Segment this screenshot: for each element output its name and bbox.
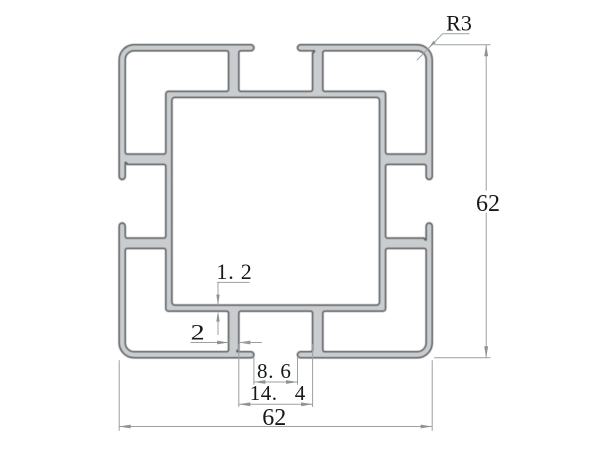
svg-text:62: 62 (476, 191, 500, 217)
svg-text:62: 62 (262, 405, 286, 431)
svg-text:R3: R3 (446, 10, 472, 35)
svg-text:2: 2 (191, 319, 205, 344)
svg-text:8. 6: 8. 6 (257, 359, 292, 383)
svg-text:1. 2: 1. 2 (216, 259, 252, 284)
